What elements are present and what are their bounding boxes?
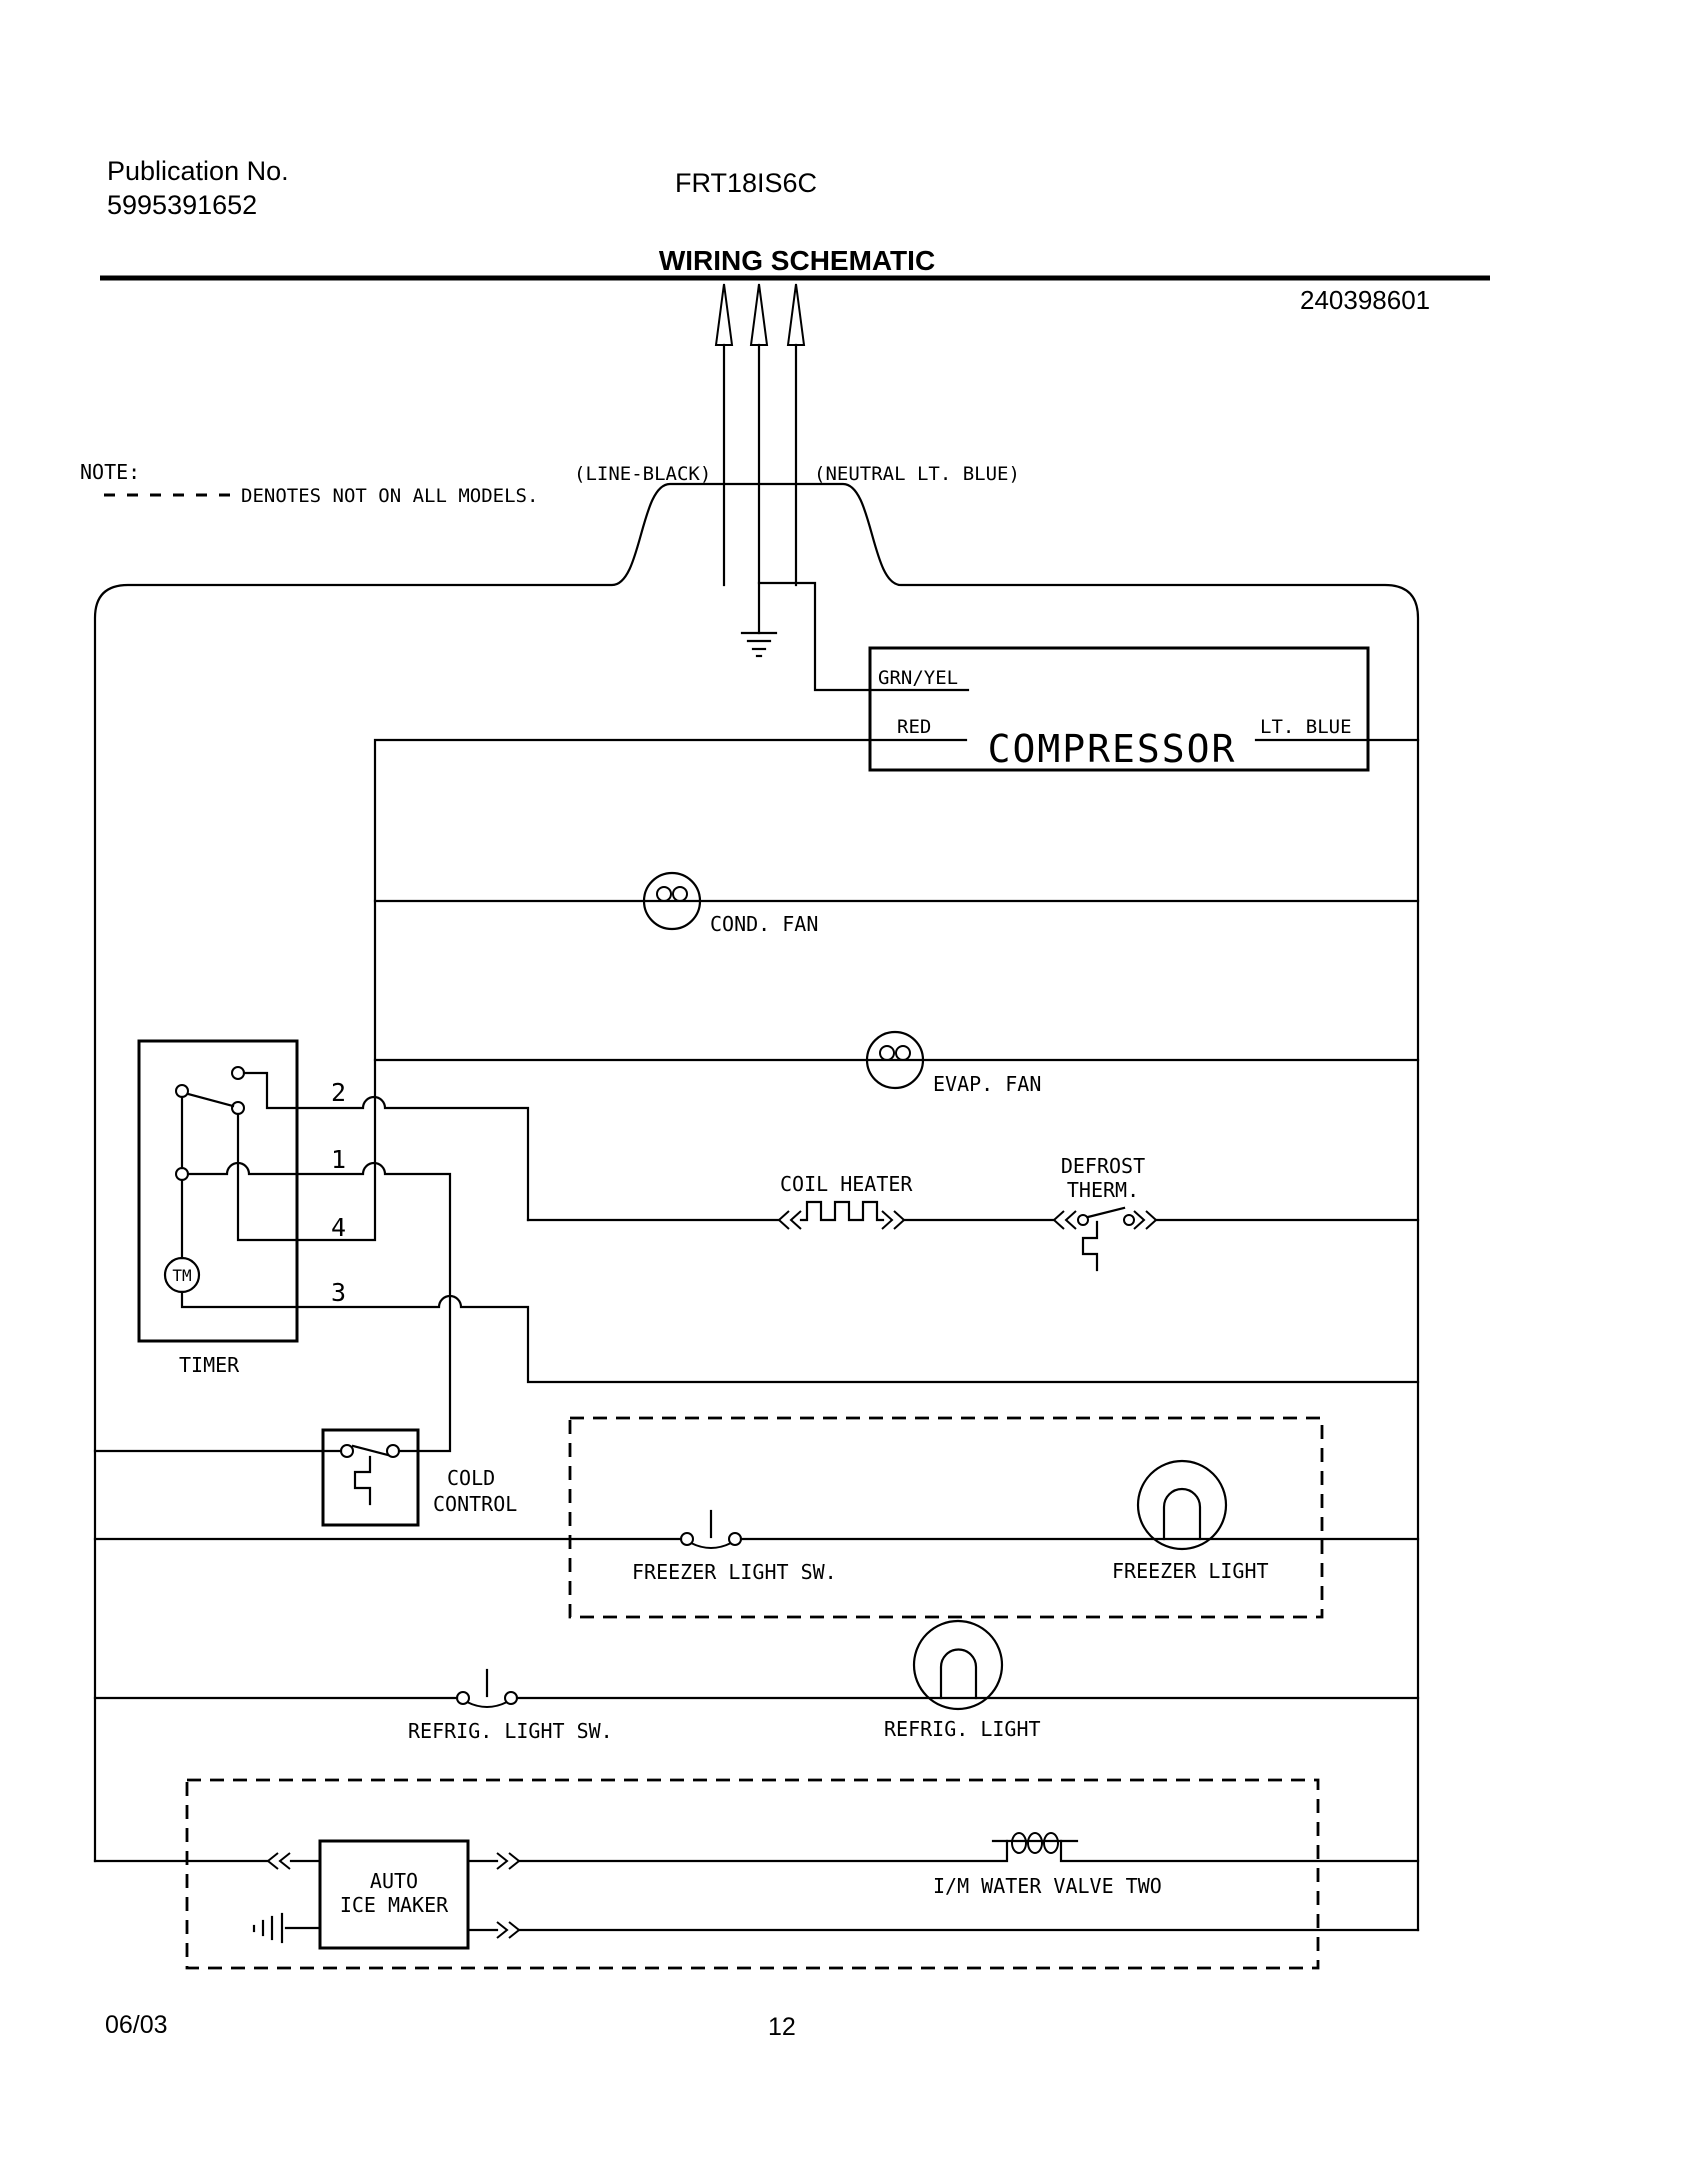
chevron-icon <box>791 1211 801 1229</box>
chevron-icon <box>1134 1211 1144 1229</box>
power-entry-arrows <box>716 284 804 633</box>
timer-box <box>139 1041 297 1341</box>
terminal-dot <box>729 1533 741 1545</box>
up-arrow-icon <box>751 284 767 345</box>
coil-heater-label: COIL HEATER <box>780 1172 913 1196</box>
cold-control-box <box>323 1430 418 1525</box>
defrost-therm-label-2: THERM. <box>1067 1178 1139 1202</box>
motor-coil <box>657 887 671 901</box>
motor-coil <box>896 1046 910 1060</box>
defrost-therm-icon <box>1054 1208 1156 1270</box>
evap-fan-label: EVAP. FAN <box>933 1072 1041 1096</box>
timer-terminal-3: 3 <box>331 1278 346 1307</box>
compressor-terminal-red: RED <box>897 716 931 738</box>
freezer-light-lamp-icon <box>1138 1461 1226 1549</box>
refrig-light-switch-icon <box>457 1670 517 1707</box>
connector-chevrons-right <box>497 1922 519 1938</box>
timer-switch-contact <box>232 1102 244 1114</box>
water-valve-label: I/M WATER VALVE TWO <box>933 1874 1162 1898</box>
coil-heater-icon <box>801 1202 883 1220</box>
cold-control-label-1: COLD <box>447 1466 495 1490</box>
lamp-circle <box>1138 1461 1226 1549</box>
chevron-icon <box>280 1853 290 1869</box>
connector-chevrons-right <box>497 1853 519 1869</box>
line-black-label: (LINE-BLACK) <box>574 463 711 485</box>
terminal-dot <box>341 1445 353 1457</box>
connector-chevrons-right <box>882 1211 904 1229</box>
chevron-icon <box>497 1853 507 1869</box>
chevron-icon <box>509 1922 519 1938</box>
footer-date: 06/03 <box>105 2011 168 2039</box>
motor-coil <box>673 887 687 901</box>
terminal-dot <box>387 1445 399 1457</box>
coil-loop <box>1044 1833 1058 1853</box>
lamp-circle <box>914 1621 1002 1709</box>
lamp-filament <box>941 1650 976 1699</box>
ice-maker-label-2: ICE MAKER <box>340 1893 449 1917</box>
enclosure-outline <box>95 484 1418 1930</box>
chevron-icon <box>1146 1211 1156 1229</box>
freezer-light-switch-icon <box>681 1511 741 1548</box>
timer-terminal-dot <box>176 1168 188 1180</box>
note-text: DENOTES NOT ON ALL MODELS. <box>241 485 538 507</box>
ice-maker-label-1: AUTO <box>370 1869 418 1893</box>
ground-icon <box>742 633 776 656</box>
compressor-label: COMPRESSOR <box>988 727 1237 771</box>
timer-wire-3 <box>182 1292 1418 1382</box>
coil-loop <box>1028 1833 1042 1853</box>
valve-wire <box>1061 1841 1418 1861</box>
part-number: 240398601 <box>1300 285 1430 315</box>
therm-sensor-jog <box>1083 1222 1097 1270</box>
refrig-light-lamp-icon <box>914 1621 1002 1709</box>
cold-control-label-2: CONTROL <box>433 1492 517 1516</box>
timer-terminal-2: 2 <box>331 1078 346 1107</box>
footer-page-number: 12 <box>768 2013 796 2041</box>
chevron-icon <box>894 1211 904 1229</box>
therm-terminal-dot <box>1124 1215 1134 1225</box>
neutral-label: (NEUTRAL LT. BLUE) <box>814 463 1020 485</box>
chevron-icon <box>1054 1211 1064 1229</box>
timer-terminal-dot <box>232 1067 244 1079</box>
water-valve-coil-icon <box>993 1833 1077 1853</box>
defrost-therm-label-1: DEFROST <box>1061 1154 1145 1178</box>
ice-maker-ground-icon <box>254 1914 320 1942</box>
up-arrow-icon <box>716 284 732 345</box>
chevron-icon <box>497 1922 507 1938</box>
lamp-filament <box>1164 1489 1200 1539</box>
grn-yel-wire <box>759 583 870 690</box>
chevron-icon <box>509 1853 519 1869</box>
chevron-icon <box>1066 1211 1076 1229</box>
sensor-jog <box>355 1457 370 1504</box>
connector-chevrons-left <box>779 1211 801 1229</box>
terminal-dot <box>505 1692 517 1704</box>
switch-contact <box>467 1702 507 1707</box>
timer-label: TIMER <box>179 1353 240 1377</box>
cold-control-switch-icon <box>341 1445 399 1504</box>
refrig-light-sw-label: REFRIG. LIGHT SW. <box>408 1719 613 1743</box>
chevron-icon <box>779 1211 789 1229</box>
note-label: NOTE: <box>80 460 140 484</box>
switch-contact <box>691 1543 731 1548</box>
switch-arm <box>353 1446 388 1455</box>
chevron-icon <box>268 1853 278 1869</box>
compressor-terminal-grnyel: GRN/YEL <box>878 667 958 689</box>
publication-label: Publication No. <box>107 156 289 186</box>
publication-number: 5995391652 <box>107 190 257 220</box>
compressor-terminal-ltblue: LT. BLUE <box>1260 716 1352 738</box>
refrig-light-label: REFRIG. LIGHT <box>884 1717 1041 1741</box>
timer-terminal-1: 1 <box>331 1145 346 1174</box>
red-wire-and-bus <box>238 740 966 1240</box>
page-title: WIRING SCHEMATIC <box>659 245 935 276</box>
freezer-light-optional-box <box>570 1418 1322 1617</box>
motor-coil <box>880 1046 894 1060</box>
freezer-light-sw-label: FREEZER LIGHT SW. <box>632 1560 837 1584</box>
timer-terminal-4: 4 <box>331 1213 346 1242</box>
timer-wire-2 <box>244 1073 528 1220</box>
up-arrow-icon <box>788 284 804 345</box>
therm-switch-arm <box>1088 1208 1124 1217</box>
connector-chevrons-left <box>268 1853 290 1869</box>
valve-wire <box>519 1841 1007 1861</box>
timer-switch-arm <box>188 1094 233 1106</box>
model-number: FRT18IS6C <box>675 168 817 198</box>
therm-terminal-dot <box>1078 1215 1088 1225</box>
schematic-page: Publication No. 5995391652 FRT18IS6C WIR… <box>0 0 1700 2178</box>
timer-motor-label: TM <box>172 1266 191 1285</box>
freezer-light-label: FREEZER LIGHT <box>1112 1559 1269 1583</box>
cond-fan-label: COND. FAN <box>710 912 818 936</box>
wiring-schematic-canvas: Publication No. 5995391652 FRT18IS6C WIR… <box>0 0 1700 2178</box>
coil-loop <box>1012 1833 1026 1853</box>
timer-switch-pivot <box>176 1085 188 1097</box>
